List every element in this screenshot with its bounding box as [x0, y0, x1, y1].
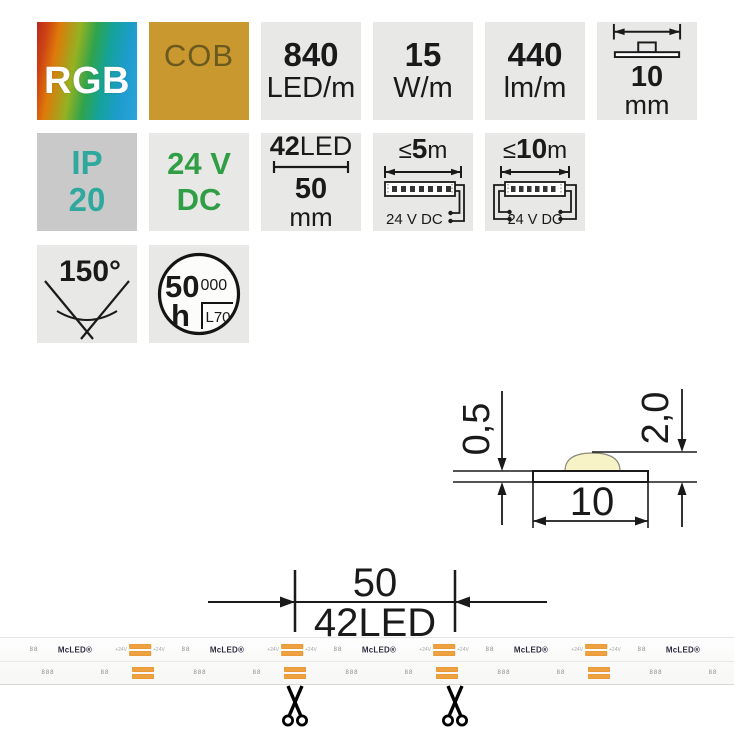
width-unit: mm — [625, 92, 670, 120]
scissors-icon — [280, 684, 310, 728]
tile-luminous-flux: 440 lm/m — [485, 22, 585, 120]
power-value: 15 — [405, 38, 442, 72]
module-length: 50 — [295, 175, 327, 204]
led-density-unit: LED/m — [267, 74, 356, 104]
module-led-count: 42LED — [270, 134, 353, 160]
max-run-5m-label: ≤5m — [399, 135, 448, 163]
scissors-icon — [440, 684, 470, 728]
strip-pads — [284, 667, 306, 679]
strip-pads — [588, 667, 610, 679]
lifetime-standard: L70 — [206, 309, 231, 326]
strip-marks: 888 — [497, 670, 510, 676]
strip-marks: 888 — [41, 670, 54, 676]
spec-tiles-row-2: IP 20 24 V DC 42LED 50 mm ≤5m — [37, 133, 585, 231]
width-value: 10 — [631, 63, 663, 93]
strip-marks: 88 — [557, 670, 566, 676]
lifetime-unit: h — [171, 298, 190, 333]
cob-label: COB — [164, 40, 234, 72]
cut-length-label: 50 — [353, 561, 398, 605]
strip-marks: 88 — [30, 647, 39, 653]
led-density-value: 840 — [283, 38, 338, 72]
tile-led-density: 840 LED/m — [261, 22, 361, 120]
lifetime-zeros: 000 — [201, 277, 228, 294]
strip-marks: 888 — [649, 670, 662, 676]
voltage-line2: DC — [177, 182, 222, 218]
strip-marks: 88 — [182, 647, 191, 653]
tile-beam-angle: 150° — [37, 245, 137, 343]
tile-max-run-5m: ≤5m 24 — [373, 133, 473, 231]
pcb-width-label: 10 — [570, 480, 615, 524]
pcb-thickness-label: 0,5 — [456, 403, 498, 456]
cross-section-drawing: 0,5 2,0 10 — [440, 385, 710, 535]
cut-dimension-drawing: 50 42LED — [190, 555, 560, 645]
strip-logo: McLED® — [58, 645, 92, 654]
strip-pads: +24V+24V — [419, 644, 469, 656]
led-dome — [565, 453, 620, 471]
voltage-line1: 24 V — [167, 146, 231, 182]
strip-band-top: 8888888888McLED®McLED®McLED®McLED®McLED®… — [0, 638, 734, 661]
strip-pads: +24V+24V — [571, 644, 621, 656]
strip-marks: 88 — [486, 647, 495, 653]
tile-strip-width: 10 mm — [597, 22, 697, 120]
max-run-10m-label: ≤10m — [503, 135, 567, 163]
spec-tiles-row-3: 150° 50 000 h L70 — [37, 245, 249, 343]
width-arrow-icon — [607, 22, 687, 63]
product-spec-sheet: RGB COB 840 LED/m 15 W/m 440 lm/m — [0, 0, 734, 734]
ip-line1: IP — [71, 145, 102, 182]
ip-line2: 20 — [69, 182, 106, 219]
beam-angle-label: 150° — [37, 257, 137, 288]
strip-run-single-feed-icon: 24 V DC — [378, 164, 468, 230]
dimension-line-icon — [271, 160, 351, 174]
strip-pads: +24V+24V — [267, 644, 317, 656]
strip-logo: McLED® — [666, 645, 700, 654]
strip-pads — [436, 667, 458, 679]
strip-marks: 88 — [709, 670, 718, 676]
strip-marks: 888 — [345, 670, 358, 676]
strip-marks: 88 — [405, 670, 414, 676]
module-unit: mm — [289, 205, 332, 230]
tile-cut-module: 42LED 50 mm — [261, 133, 361, 231]
lifetime-circle-icon: 50 000 h L70 — [156, 251, 242, 337]
strip-run-dual-feed-icon: 24 V DC — [490, 164, 580, 230]
tile-rgb: RGB — [37, 22, 137, 120]
tile-voltage: 24 V DC — [149, 133, 249, 231]
spec-tiles-row-1: RGB COB 840 LED/m 15 W/m 440 lm/m — [37, 22, 697, 120]
tile-ip-rating: IP 20 — [37, 133, 137, 231]
strip-logo: McLED® — [514, 645, 548, 654]
power-unit: W/m — [393, 74, 453, 104]
led-strip-photo: 8888888888McLED®McLED®McLED®McLED®McLED®… — [0, 637, 734, 685]
strip-marks: 88 — [638, 647, 647, 653]
strip-band-bottom: 8888888888888888888888888 — [0, 661, 734, 684]
rgb-label: RGB — [44, 62, 130, 101]
strip-marks: 888 — [193, 670, 206, 676]
strip-marks: 88 — [101, 670, 110, 676]
tile-cob: COB — [149, 22, 249, 120]
strip-logo: McLED® — [210, 645, 244, 654]
strip-pads: +24V+24V — [115, 644, 165, 656]
tile-power: 15 W/m — [373, 22, 473, 120]
strip-marks: 88 — [253, 670, 262, 676]
strip-pads — [132, 667, 154, 679]
tile-lifetime: 50 000 h L70 — [149, 245, 249, 343]
strip-marks: 88 — [334, 647, 343, 653]
tile-max-run-10m: ≤10m — [485, 133, 585, 231]
strip-logo: McLED® — [362, 645, 396, 654]
run10-supply-label: 24 V DC — [508, 212, 563, 228]
total-height-label: 2,0 — [635, 392, 677, 445]
run5-supply-label: 24 V DC — [386, 211, 443, 228]
flux-value: 440 — [507, 38, 562, 72]
flux-unit: lm/m — [504, 74, 567, 104]
